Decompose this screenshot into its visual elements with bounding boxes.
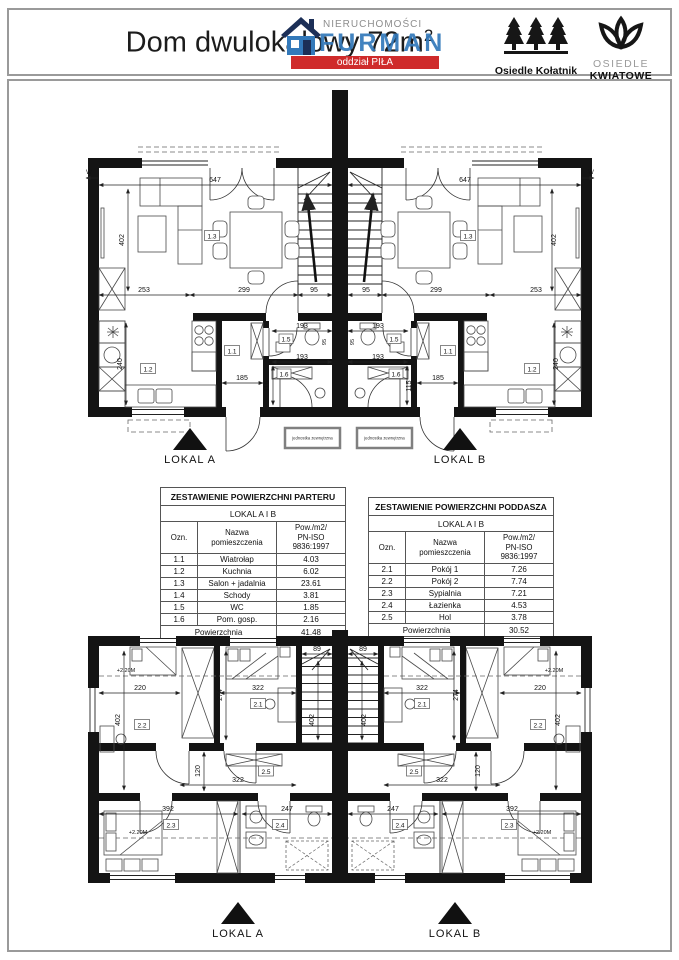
bed-double (226, 647, 278, 679)
table-poddasze-subtitle: LOKAL A I B (369, 516, 554, 532)
table-parter: ZESTAWIENIE POWIERZCHNI PARTERU LOKAL A … (160, 487, 346, 639)
table-row: 1.2Kuchnia6.02 (161, 566, 346, 578)
svg-text:95: 95 (322, 339, 328, 345)
svg-text:+2.20M: +2.20M (117, 668, 136, 674)
svg-text:185: 185 (236, 375, 248, 382)
hall-cabinet (226, 754, 282, 766)
svg-text:2.2: 2.2 (137, 723, 146, 730)
svg-text:220: 220 (534, 685, 546, 692)
svg-text:247: 247 (281, 806, 293, 813)
outdoor-unit-a: jednostka zewnętrzna (285, 428, 340, 448)
svg-text:253: 253 (138, 287, 150, 294)
shower (286, 841, 328, 870)
svg-text:193: 193 (296, 323, 308, 330)
svg-text:402: 402 (119, 234, 126, 246)
svg-text:2.4: 2.4 (395, 823, 404, 830)
svg-text:LOKAL A: LOKAL A (164, 454, 216, 466)
table-row: 1.4Schody3.81 (161, 590, 346, 602)
table-row: 2.2Pokój 27.74 (369, 576, 554, 588)
svg-text:1.5: 1.5 (281, 337, 290, 344)
chair (116, 734, 126, 744)
table-poddasze-title: ZESTAWIENIE POWIERZCHNI PODDASZA (369, 498, 554, 516)
bench (142, 859, 158, 871)
svg-text:253: 253 (530, 287, 542, 294)
bench (124, 859, 140, 871)
marker-lokal-a: LOKAL A (212, 902, 264, 940)
svg-text:647: 647 (459, 177, 471, 184)
svg-text:220: 220 (134, 685, 146, 692)
svg-text:247: 247 (387, 806, 399, 813)
marker-lokal-b: LOKAL B (429, 902, 481, 940)
svg-text:115: 115 (406, 380, 413, 391)
wardrobe (182, 648, 214, 738)
table-row: 2.4Łazienka4.53 (369, 600, 554, 612)
table-row: 1.1Wiatrołap4.03 (161, 554, 346, 566)
toilet-icon (306, 806, 322, 826)
svg-text:392: 392 (162, 806, 174, 813)
svg-text:402: 402 (551, 234, 558, 246)
svg-text:322: 322 (436, 777, 448, 784)
attic-floor-plan: 220 220 402 402 322 322 274 274 89 89 40… (80, 628, 600, 946)
ground-floor-unit-a (88, 147, 332, 451)
svg-text:402: 402 (555, 714, 562, 726)
logo-osiedle-kolatnik: Osiedle Kołatnik (494, 15, 578, 77)
col-name: Nazwapomieszczenia (406, 532, 485, 564)
svg-text:1.1: 1.1 (443, 349, 452, 356)
svg-text:392: 392 (506, 806, 518, 813)
table-parter-subtitle: LOKAL A I B (161, 506, 346, 522)
svg-text:+2.20M: +2.20M (533, 830, 552, 836)
svg-text:2.5: 2.5 (409, 769, 418, 776)
svg-text:LOKAL A: LOKAL A (212, 928, 264, 940)
svg-text:2.2: 2.2 (533, 723, 542, 730)
svg-text:299: 299 (430, 287, 442, 294)
svg-text:322: 322 (232, 777, 244, 784)
svg-text:2.1: 2.1 (253, 702, 262, 709)
trees-icon (503, 15, 569, 59)
svg-text:LOKAL B: LOKAL B (429, 928, 481, 940)
table-row: 1.5WC1.85 (161, 602, 346, 614)
svg-text:193: 193 (296, 354, 308, 361)
fireplace-shaft (99, 268, 125, 310)
svg-text:+2.20M: +2.20M (129, 830, 148, 836)
table-row: 1.6Pom. gosp.2.16 (161, 614, 346, 626)
floor-plan-document: Dom dwulokalowy 72m2 NIERUCHOMOŚCI FURMA… (0, 0, 679, 960)
svg-text:89: 89 (359, 646, 367, 653)
chair (265, 699, 275, 709)
house-icon (279, 15, 323, 57)
col-ozn: Ozn. (369, 532, 406, 564)
dining-set (213, 196, 299, 284)
svg-text:95: 95 (310, 287, 318, 294)
svg-text:1.6: 1.6 (279, 372, 288, 379)
col-ozn: Ozn. (161, 522, 198, 554)
party-wall (332, 90, 348, 417)
svg-text:120: 120 (195, 765, 202, 777)
svg-text:274: 274 (453, 689, 460, 701)
bed-single (130, 647, 176, 675)
nightstand (280, 647, 290, 657)
party-wall (332, 630, 348, 883)
svg-text:193: 193 (372, 323, 384, 330)
table-poddasze: ZESTAWIENIE POWIERZCHNI PODDASZA LOKAL A… (368, 497, 554, 637)
watermark-line3: oddział PIŁA (291, 56, 439, 69)
svg-text:322: 322 (252, 685, 264, 692)
bedroom-wardrobe (217, 801, 238, 873)
watermark-line2: FURMAN (319, 29, 445, 58)
svg-text:115: 115 (264, 380, 271, 391)
svg-text:193: 193 (372, 354, 384, 361)
coffee-table (138, 216, 166, 252)
table-row: 1.3Salon + jadalnia23.61 (161, 578, 346, 590)
table-row: 2.5Hol3.78 (369, 612, 554, 624)
svg-text:95: 95 (362, 287, 370, 294)
tv (101, 208, 104, 258)
bath-sink (246, 832, 266, 848)
svg-text:1.1: 1.1 (227, 349, 236, 356)
svg-text:120: 120 (475, 765, 482, 777)
water-heater (315, 388, 325, 398)
svg-text:LOKAL B: LOKAL B (434, 454, 486, 466)
svg-text:2.1: 2.1 (417, 702, 426, 709)
attic-stairs (302, 649, 332, 743)
bench (106, 859, 122, 871)
svg-text:2.3: 2.3 (504, 823, 513, 830)
marker-lokal-a: LOKAL A (164, 428, 216, 466)
col-name: Nazwapomieszczenia (198, 522, 277, 554)
svg-text:647: 647 (209, 177, 221, 184)
logo-flower-top: OSIEDLE (584, 58, 658, 70)
svg-text:240: 240 (553, 358, 560, 370)
marker-lokal-b: LOKAL B (434, 428, 486, 466)
svg-text:2.3: 2.3 (166, 823, 175, 830)
logo-osiedle-kwiatowe: OSIEDLE KWIATOWE (584, 15, 658, 82)
svg-text:W: W (86, 170, 92, 176)
svg-text:2.5: 2.5 (261, 769, 270, 776)
svg-text:402: 402 (361, 714, 368, 726)
table-row: 2.1Pokój 17.26 (369, 564, 554, 576)
table-row: 2.3Sypialnia7.21 (369, 588, 554, 600)
svg-text:299: 299 (238, 287, 250, 294)
svg-text:402: 402 (115, 714, 122, 726)
svg-text:1.3: 1.3 (463, 234, 472, 241)
hall-wardrobe (251, 323, 263, 359)
svg-text:jednostka zewnętrzna: jednostka zewnętrzna (363, 436, 405, 441)
svg-text:322: 322 (416, 685, 428, 692)
sofa (140, 178, 202, 264)
stairs (298, 168, 332, 295)
svg-text:+2.20M: +2.20M (545, 668, 564, 674)
svg-text:185: 185 (432, 375, 444, 382)
svg-text:89: 89 (313, 646, 321, 653)
svg-text:W: W (588, 170, 594, 176)
svg-text:1.3: 1.3 (207, 234, 216, 241)
flower-icon (595, 15, 647, 53)
washing-machine (246, 806, 266, 828)
col-area: Pow./m2/PN-ISO 9836:1997 (485, 532, 554, 564)
svg-text:2.4: 2.4 (275, 823, 284, 830)
svg-text:1.2: 1.2 (143, 367, 152, 374)
svg-text:402: 402 (309, 714, 316, 726)
col-area: Pow./m2/PN-ISO 9836:1997 (277, 522, 346, 554)
logo-trees-label: Osiedle Kołatnik (494, 65, 578, 77)
svg-text:1.5: 1.5 (389, 337, 398, 344)
outdoor-unit-b: jednostka zewnętrzna (357, 428, 412, 448)
table-parter-title: ZESTAWIENIE POWIERZCHNI PARTERU (161, 488, 346, 506)
svg-text:1.2: 1.2 (527, 367, 536, 374)
svg-text:jednostka zewnętrzna: jednostka zewnętrzna (291, 436, 333, 441)
svg-text:95: 95 (350, 339, 356, 345)
ground-floor-plan: 647 647 402 402 253 299 95 95 299 253 19… (80, 90, 600, 468)
svg-text:240: 240 (117, 358, 124, 370)
svg-text:274: 274 (217, 689, 224, 701)
header: Dom dwulokalowy 72m2 NIERUCHOMOŚCI FURMA… (7, 8, 672, 76)
svg-text:1.6: 1.6 (391, 372, 400, 379)
